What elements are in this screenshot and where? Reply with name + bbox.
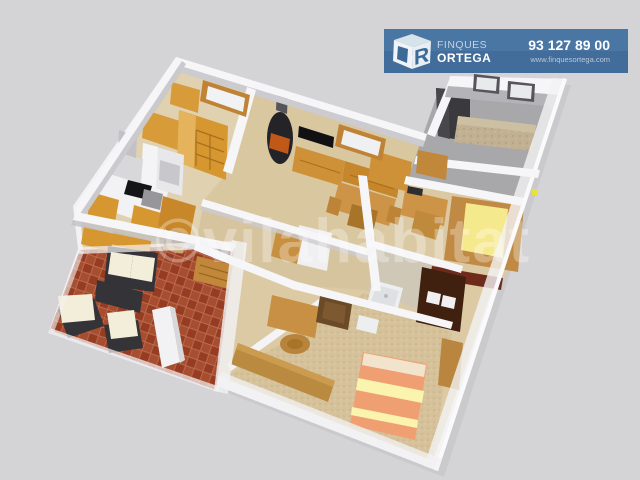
svg-text:©vilahabitat: ©vilahabitat <box>155 207 531 276</box>
svg-text:www.finquesortega.com: www.finquesortega.com <box>529 55 610 64</box>
svg-text:ORTEGA: ORTEGA <box>437 51 491 65</box>
svg-text:FINQUES: FINQUES <box>437 39 487 51</box>
svg-text:R: R <box>414 42 430 70</box>
svg-text:93 127 89 00: 93 127 89 00 <box>528 37 610 53</box>
